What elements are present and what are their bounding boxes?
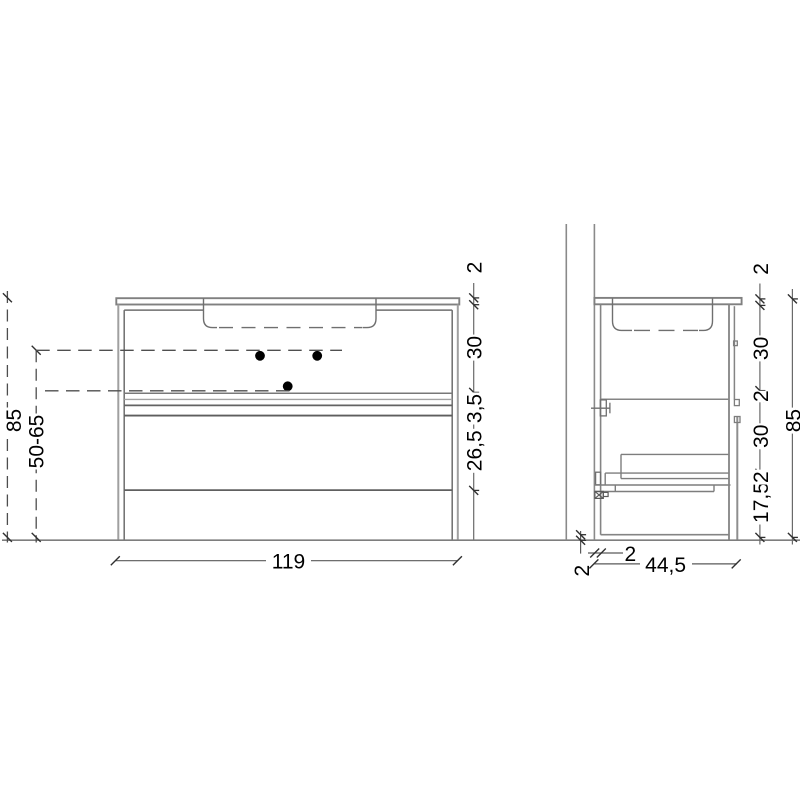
svg-text:85: 85 [782, 409, 800, 432]
svg-text:85: 85 [3, 409, 26, 432]
svg-text:44,5: 44,5 [645, 554, 686, 577]
svg-text:119: 119 [272, 550, 305, 573]
svg-text:2: 2 [750, 390, 773, 402]
svg-text:30: 30 [750, 337, 773, 360]
svg-text:26,5: 26,5 [464, 430, 487, 471]
svg-text:2: 2 [750, 471, 773, 483]
svg-text:2: 2 [625, 543, 637, 566]
svg-text:30: 30 [750, 425, 773, 448]
svg-text:17,5: 17,5 [750, 482, 773, 523]
svg-text:30: 30 [464, 336, 487, 359]
svg-text:50-65: 50-65 [26, 415, 49, 469]
svg-text:2: 2 [750, 263, 773, 275]
svg-text:2: 2 [464, 262, 487, 274]
svg-text:3,5: 3,5 [464, 394, 487, 423]
